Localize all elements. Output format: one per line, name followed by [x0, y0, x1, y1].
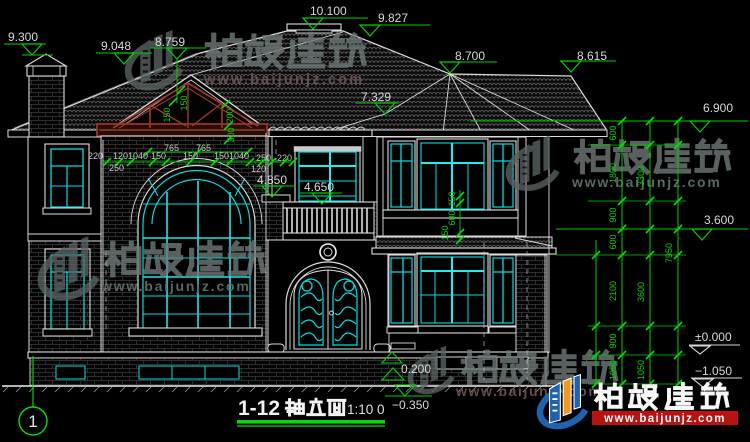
svg-text:1050: 1050: [636, 360, 646, 380]
svg-text:9.048: 9.048: [101, 39, 131, 53]
svg-text:1800: 1800: [608, 163, 618, 183]
svg-text:9.300: 9.300: [8, 30, 38, 44]
svg-text:150: 150: [151, 151, 166, 161]
svg-text:8.700: 8.700: [455, 49, 485, 63]
svg-text:www.baijunjz.com: www.baijunjz.com: [603, 413, 726, 425]
svg-text:1:10 0: 1:10 0: [347, 402, 385, 417]
svg-text:900: 900: [608, 333, 618, 348]
svg-text:1-12: 1-12: [238, 397, 280, 420]
svg-text:3.600: 3.600: [704, 213, 734, 227]
svg-text:±0.000: ±0.000: [695, 330, 732, 344]
svg-text:150: 150: [162, 107, 172, 122]
svg-text:4.850: 4.850: [257, 173, 287, 187]
svg-text:600: 600: [608, 125, 618, 140]
svg-text:7950: 7950: [664, 243, 674, 263]
svg-text:6.900: 6.900: [703, 101, 733, 115]
svg-text:8.759: 8.759: [155, 35, 185, 49]
svg-text:3600: 3600: [636, 282, 646, 302]
svg-text:250: 250: [109, 163, 124, 173]
svg-text:7.329: 7.329: [361, 90, 391, 104]
svg-text:120: 120: [251, 164, 266, 174]
svg-text:1: 1: [28, 412, 37, 431]
svg-text:150: 150: [183, 151, 198, 161]
svg-text:−0.350: −0.350: [392, 398, 429, 412]
svg-text:150: 150: [440, 225, 450, 240]
svg-text:0.200: 0.200: [401, 362, 431, 376]
svg-text:150: 150: [214, 151, 229, 161]
svg-text:10.100: 10.100: [310, 4, 347, 18]
svg-text:9.827: 9.827: [378, 11, 408, 25]
svg-text:600: 600: [608, 234, 618, 249]
svg-text:4.650: 4.650: [304, 180, 334, 194]
svg-text:200: 200: [225, 108, 235, 123]
svg-text:1050: 1050: [608, 360, 618, 380]
svg-text:www.baijunjz.com: www.baijunjz.com: [203, 72, 364, 88]
svg-text:600: 600: [447, 210, 457, 225]
svg-text:−1.050: −1.050: [695, 364, 732, 378]
svg-text:www.baijunjz.com: www.baijunjz.com: [100, 278, 251, 294]
svg-text:150: 150: [447, 191, 457, 206]
svg-text:3300: 3300: [636, 166, 646, 186]
svg-text:900: 900: [608, 207, 618, 222]
svg-text:www.baijunjz.com: www.baijunjz.com: [571, 174, 722, 190]
svg-text:1040: 1040: [128, 151, 148, 161]
svg-text:150: 150: [179, 95, 189, 110]
svg-text:220: 220: [88, 151, 103, 161]
svg-text:2100: 2100: [608, 281, 618, 301]
svg-text:765: 765: [164, 143, 179, 153]
